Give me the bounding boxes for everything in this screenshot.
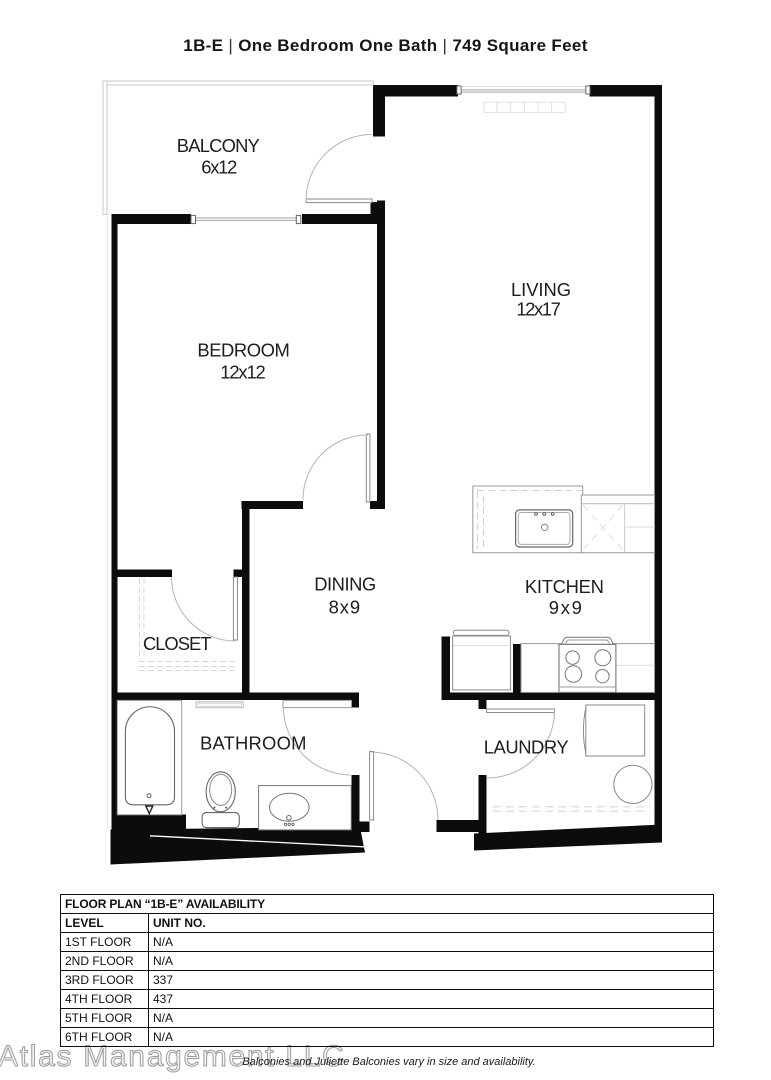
svg-text:LAUNDRY: LAUNDRY (484, 736, 569, 757)
svg-text:8x9: 8x9 (329, 596, 361, 617)
svg-text:12x17: 12x17 (516, 299, 561, 320)
svg-text:6x12: 6x12 (201, 157, 237, 178)
svg-text:12x12: 12x12 (220, 361, 266, 382)
svg-text:BATHROOM: BATHROOM (200, 732, 307, 753)
svg-text:BALCONY: BALCONY (177, 135, 260, 156)
svg-text:KITCHEN: KITCHEN (525, 576, 604, 597)
svg-text:9x9: 9x9 (549, 597, 582, 618)
svg-text:DINING: DINING (314, 574, 376, 595)
svg-text:BEDROOM: BEDROOM (197, 340, 290, 361)
svg-text:CLOSET: CLOSET (143, 633, 212, 654)
svg-text:LIVING: LIVING (511, 279, 571, 300)
